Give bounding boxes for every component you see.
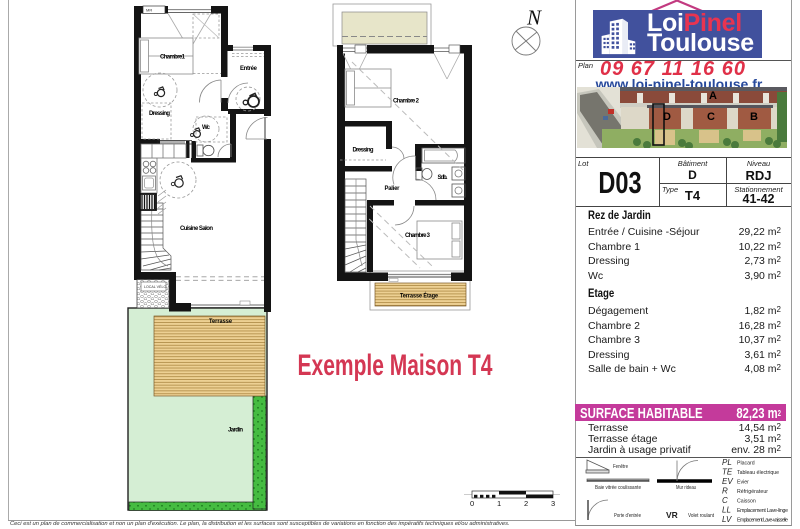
svg-text:D: D xyxy=(663,111,671,123)
svg-text:Baie vitrée coulissante: Baie vitrée coulissante xyxy=(595,485,641,491)
svg-text:VR: VR xyxy=(666,510,678,520)
svg-text:N: N xyxy=(526,6,542,30)
svg-text:Palier: Palier xyxy=(385,186,401,192)
svg-text:Cuisine Salon: Cuisine Salon xyxy=(180,226,213,232)
svg-text:Volet roulant: Volet roulant xyxy=(688,513,714,519)
svg-text:Chambre 3: Chambre 3 xyxy=(405,233,431,239)
svg-text:LV: LV xyxy=(722,515,732,524)
svg-text:PL: PL xyxy=(722,458,732,467)
svg-text:Réfrigérateur: Réfrigérateur xyxy=(737,489,768,495)
svg-text:Emplacement Lave-vaisselle: Emplacement Lave-vaisselle xyxy=(737,518,788,524)
svg-text:LOCAL VÉLO: LOCAL VÉLO xyxy=(144,284,166,289)
svg-text:MR: MR xyxy=(146,8,152,13)
svg-text:Chambre1: Chambre1 xyxy=(160,55,186,61)
svg-text:Terrasse Étage: Terrasse Étage xyxy=(400,291,438,300)
svg-text:Porte d'entrée: Porte d'entrée xyxy=(614,513,641,519)
svg-text:Jardin: Jardin xyxy=(228,428,243,434)
svg-text:Evier: Evier xyxy=(737,480,749,486)
svg-text:Tableau électrique: Tableau électrique xyxy=(737,470,779,476)
svg-text:Caisson: Caisson xyxy=(737,499,756,505)
svg-text:Chambre 2: Chambre 2 xyxy=(393,99,420,105)
svg-text:Terrasse: Terrasse xyxy=(209,318,232,325)
svg-text:Entrée: Entrée xyxy=(240,66,258,72)
svg-text:EV: EV xyxy=(722,477,733,486)
svg-text:Fenêtre: Fenêtre xyxy=(613,464,628,470)
svg-text:Wc: Wc xyxy=(202,125,211,131)
svg-text:R: R xyxy=(722,487,728,496)
svg-text:Mur rideau: Mur rideau xyxy=(676,485,696,491)
svg-text:1: 1 xyxy=(497,499,501,508)
svg-text:3: 3 xyxy=(551,499,555,508)
svg-text:Dressing: Dressing xyxy=(353,148,374,154)
svg-text:2: 2 xyxy=(524,499,528,508)
svg-text:Emplacement Lave-linge: Emplacement Lave-linge xyxy=(737,508,788,514)
svg-text:0: 0 xyxy=(470,499,474,508)
svg-text:TE: TE xyxy=(722,468,733,477)
svg-text:A: A xyxy=(709,90,717,102)
svg-text:C: C xyxy=(707,111,715,123)
svg-text:C: C xyxy=(722,496,728,505)
svg-text:Placard: Placard xyxy=(737,461,755,467)
svg-text:Dressing: Dressing xyxy=(149,111,170,117)
svg-text:LL: LL xyxy=(722,506,731,515)
svg-text:B: B xyxy=(750,111,758,123)
svg-text:Sdb.: Sdb. xyxy=(438,175,448,181)
